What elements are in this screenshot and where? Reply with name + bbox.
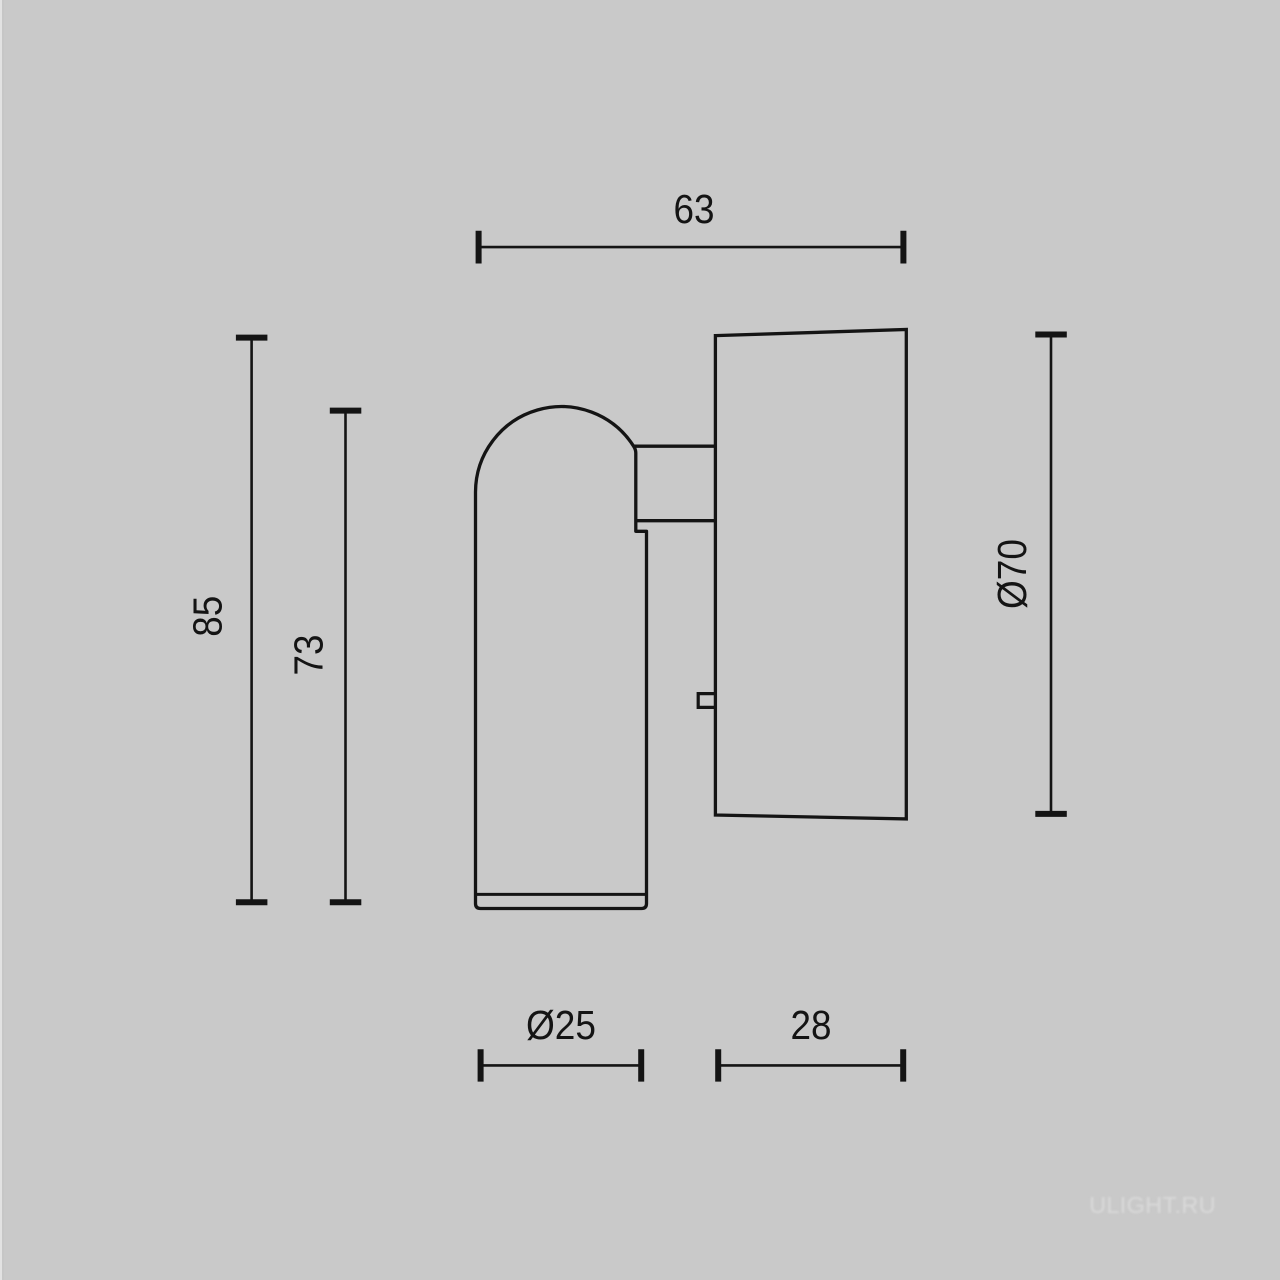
svg-text:63: 63: [674, 186, 715, 232]
svg-text:Ø70: Ø70: [989, 539, 1035, 609]
svg-text:Ø25: Ø25: [526, 1002, 596, 1048]
svg-text:73: 73: [285, 635, 331, 676]
svg-text:28: 28: [791, 1002, 832, 1048]
svg-text:ULIGHT.RU: ULIGHT.RU: [1089, 1192, 1216, 1218]
svg-text:85: 85: [184, 596, 230, 637]
